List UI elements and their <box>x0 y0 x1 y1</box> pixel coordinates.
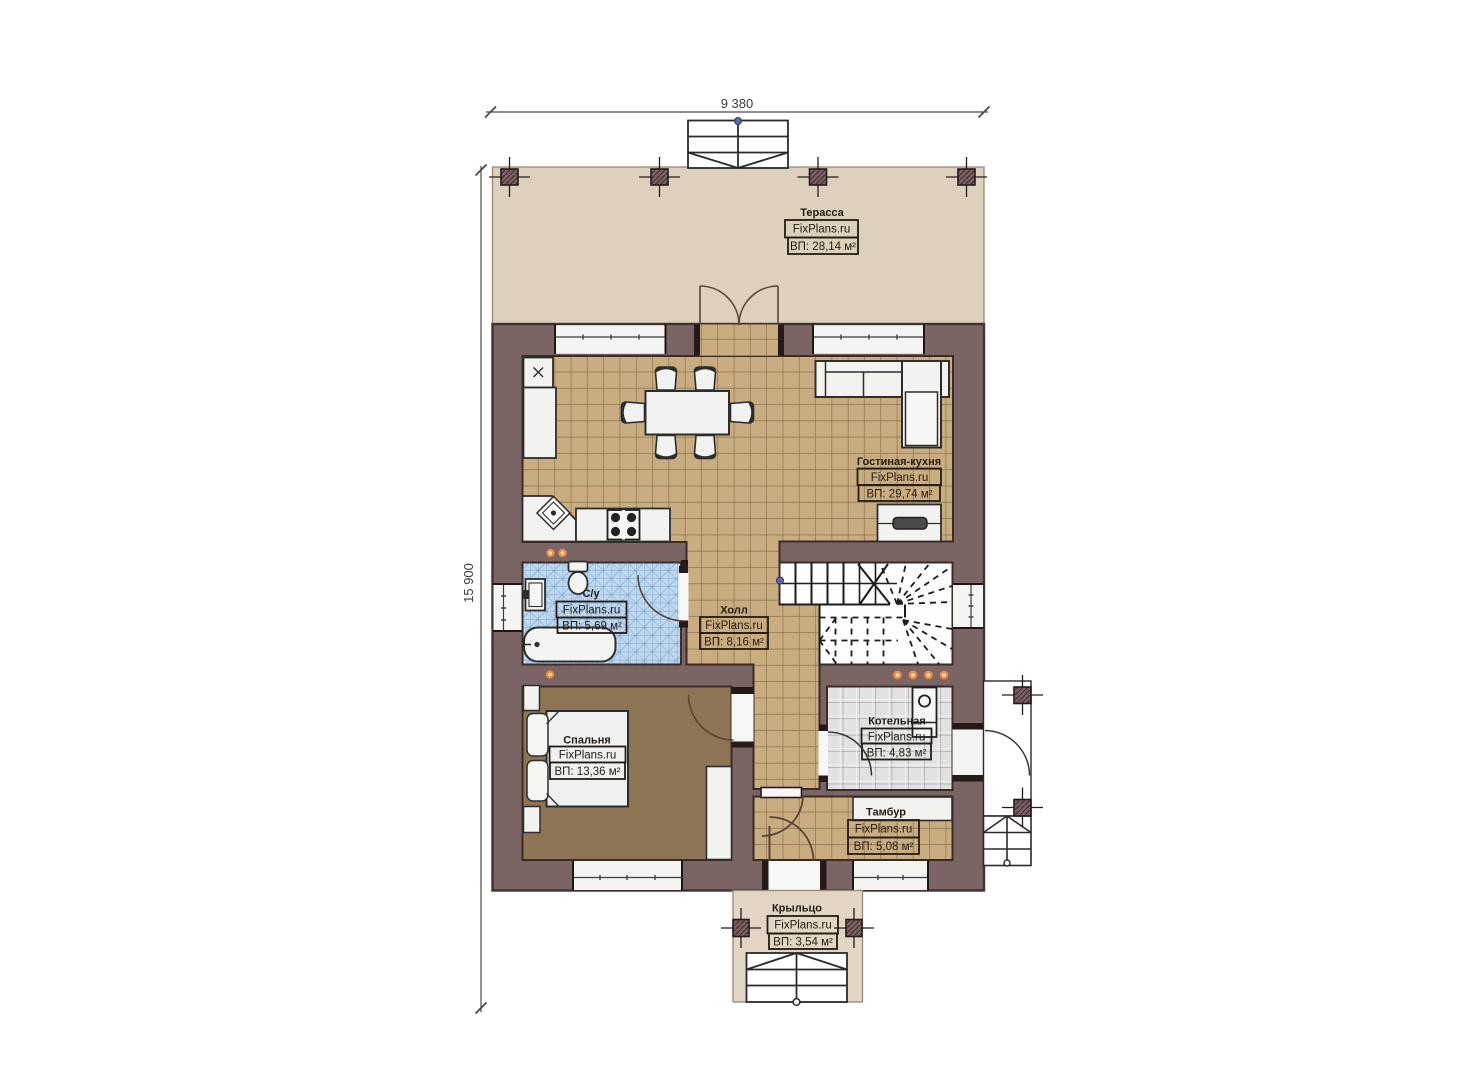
svg-text:С/у: С/у <box>582 588 600 600</box>
svg-text:FixPlans.ru: FixPlans.ru <box>793 224 851 236</box>
svg-text:ВП: 8,16 м²: ВП: 8,16 м² <box>704 637 764 649</box>
svg-text:ВП: 28,14 м²: ВП: 28,14 м² <box>790 241 856 253</box>
svg-text:Котельная: Котельная <box>868 716 926 728</box>
svg-text:FixPlans.ru: FixPlans.ru <box>868 732 926 744</box>
svg-text:FixPlans.ru: FixPlans.ru <box>563 605 621 617</box>
svg-text:ВП: 29,74 м²: ВП: 29,74 м² <box>866 489 932 501</box>
svg-text:FixPlans.ru: FixPlans.ru <box>774 920 832 932</box>
svg-text:Спальня: Спальня <box>563 735 611 747</box>
svg-text:ВП: 13,36 м²: ВП: 13,36 м² <box>554 766 620 778</box>
svg-text:FixPlans.ru: FixPlans.ru <box>705 620 763 632</box>
svg-text:ВП: 5,08 м²: ВП: 5,08 м² <box>854 841 914 853</box>
svg-text:Терасса: Терасса <box>800 207 844 219</box>
svg-text:FixPlans.ru: FixPlans.ru <box>855 824 913 836</box>
svg-text:Гостиная-кухня: Гостиная-кухня <box>857 456 941 468</box>
svg-text:Холл: Холл <box>720 605 748 617</box>
svg-text:ВП: 5,69 м²: ВП: 5,69 м² <box>562 621 622 633</box>
svg-text:ВП: 4,83 м²: ВП: 4,83 м² <box>867 748 927 760</box>
svg-text:ВП: 3,54 м²: ВП: 3,54 м² <box>773 937 833 949</box>
svg-text:Тамбур: Тамбур <box>866 807 906 819</box>
svg-text:FixPlans.ru: FixPlans.ru <box>559 750 617 762</box>
svg-text:9 380: 9 380 <box>721 96 754 111</box>
svg-text:FixPlans.ru: FixPlans.ru <box>871 472 929 484</box>
svg-text:15 900: 15 900 <box>461 563 476 603</box>
svg-text:Крыльцо: Крыльцо <box>772 903 822 915</box>
